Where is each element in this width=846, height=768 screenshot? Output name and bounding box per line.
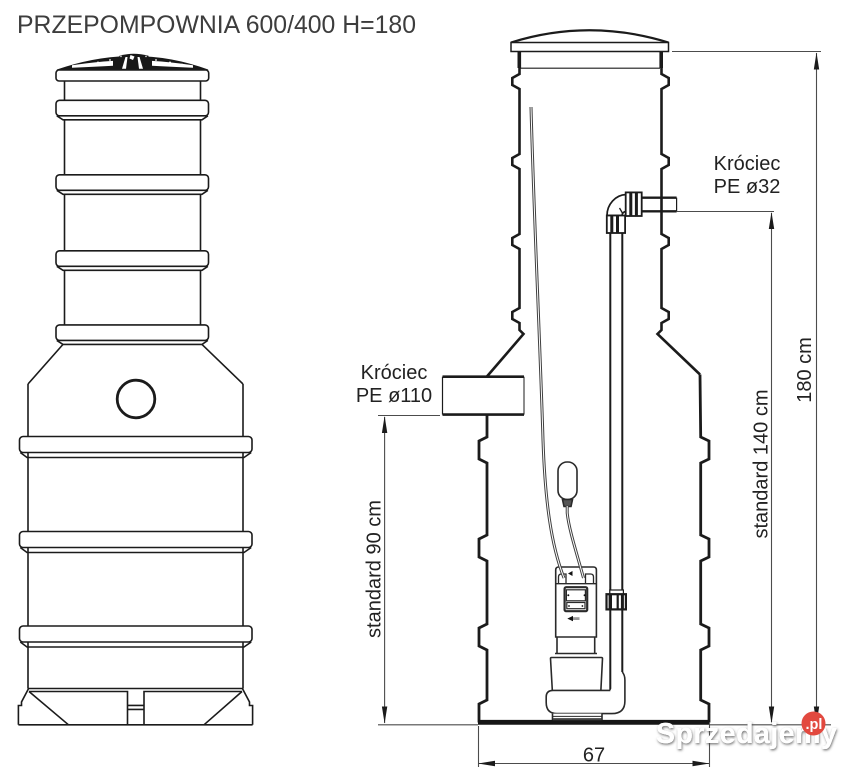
svg-text:.pl: .pl — [806, 717, 823, 733]
svg-text:PE ø110: PE ø110 — [356, 385, 432, 407]
svg-text:67: 67 — [583, 745, 605, 767]
svg-text:Króciec: Króciec — [361, 362, 428, 384]
svg-text:180 cm: 180 cm — [794, 337, 816, 403]
svg-text:standard 90 cm: standard 90 cm — [364, 500, 386, 638]
svg-text:standard 140 cm: standard 140 cm — [751, 390, 773, 539]
svg-text:PRZEPOMPOWNIA 600/400 H=180: PRZEPOMPOWNIA 600/400 H=180 — [17, 12, 416, 39]
svg-text:Króciec: Króciec — [714, 153, 781, 175]
svg-text:PE ø32: PE ø32 — [714, 176, 781, 198]
